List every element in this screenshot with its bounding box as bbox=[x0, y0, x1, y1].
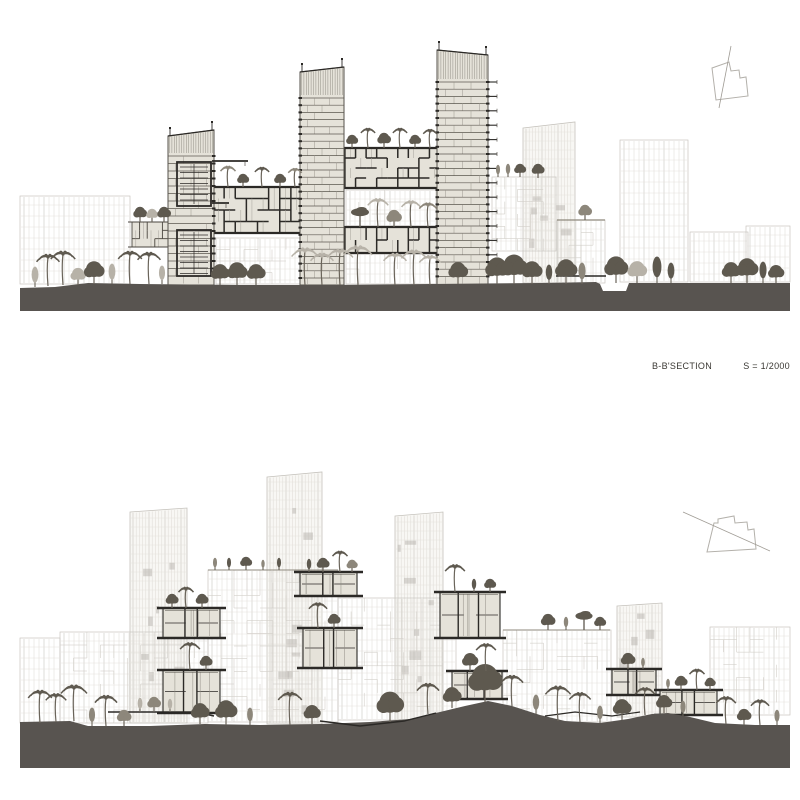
palm-tree bbox=[344, 246, 372, 285]
round-tree bbox=[594, 617, 606, 630]
palm-tree bbox=[393, 128, 407, 148]
slim-tree bbox=[227, 558, 231, 570]
palm-tree bbox=[37, 255, 60, 286]
palm-tree bbox=[423, 129, 436, 148]
keyplan-icon bbox=[712, 46, 748, 108]
palm-tree bbox=[419, 203, 436, 227]
slim-tree bbox=[533, 695, 539, 714]
round-tree bbox=[386, 210, 401, 227]
upper-section-drawing bbox=[20, 41, 790, 311]
maze-shape bbox=[209, 187, 306, 233]
palm-tree bbox=[333, 551, 348, 572]
scale-label: S = 1/2000 bbox=[743, 361, 790, 371]
box-shape bbox=[297, 628, 363, 668]
drawing-annotation: B-B'SECTION S = 1/2000 bbox=[652, 361, 790, 371]
palm-tree bbox=[361, 128, 375, 148]
round-tree bbox=[240, 557, 252, 570]
round-tree bbox=[578, 205, 592, 220]
round-tree bbox=[347, 560, 358, 572]
palm-tree bbox=[221, 166, 236, 187]
keyplan-icon bbox=[683, 512, 770, 552]
round-tree bbox=[377, 133, 391, 148]
slim-tree bbox=[668, 263, 675, 283]
slim-tree bbox=[261, 560, 264, 570]
palm-tree bbox=[402, 201, 421, 227]
box-shape bbox=[157, 608, 226, 638]
round-tree bbox=[200, 656, 213, 670]
round-tree bbox=[675, 676, 688, 690]
slim-tree bbox=[578, 263, 585, 284]
round-tree bbox=[604, 256, 628, 283]
round-tree bbox=[70, 268, 85, 285]
section-label: B-B'SECTION bbox=[652, 361, 712, 371]
box-shape bbox=[294, 572, 363, 596]
round-tree bbox=[237, 174, 249, 187]
slim-tree bbox=[759, 262, 766, 283]
slim-tree bbox=[666, 679, 670, 690]
palm-tree bbox=[569, 693, 590, 722]
round-tree bbox=[768, 265, 784, 283]
keyplan-shape bbox=[683, 512, 770, 552]
palm-tree bbox=[690, 669, 705, 690]
faint-shape bbox=[20, 638, 60, 723]
round-tree bbox=[274, 174, 286, 187]
maze-shape bbox=[341, 148, 444, 188]
round-tree bbox=[484, 579, 496, 592]
round-tree bbox=[84, 261, 105, 284]
palm-tree bbox=[138, 253, 161, 284]
faint-shape bbox=[710, 627, 790, 715]
round-tree bbox=[247, 264, 266, 285]
slim-tree bbox=[247, 708, 253, 725]
ground-shape bbox=[20, 282, 790, 311]
pine-tree bbox=[351, 207, 369, 227]
round-tree bbox=[146, 209, 158, 222]
palm-tree bbox=[51, 251, 75, 285]
lower-section-drawing bbox=[20, 472, 790, 768]
keyplan-shape bbox=[712, 46, 748, 108]
slim-tree bbox=[506, 164, 510, 177]
slim-tree bbox=[213, 558, 217, 570]
palm-tree bbox=[255, 167, 269, 187]
ctower-shape bbox=[436, 41, 498, 285]
round-tree bbox=[541, 614, 556, 630]
drawing-sheet: B-B'SECTION S = 1/2000 bbox=[0, 0, 800, 800]
slim-tree bbox=[159, 266, 165, 284]
box-shape bbox=[434, 592, 506, 638]
palm-tree bbox=[751, 700, 769, 725]
pine-tree bbox=[575, 611, 592, 630]
palm-tree bbox=[28, 690, 52, 723]
slim-tree bbox=[564, 617, 568, 630]
slim-tree bbox=[774, 710, 779, 725]
section-drawings bbox=[0, 0, 800, 800]
maze-shape bbox=[128, 222, 174, 247]
box-shape bbox=[606, 669, 662, 695]
slim-tree bbox=[472, 579, 476, 592]
ftower-shape bbox=[267, 472, 322, 724]
round-tree bbox=[196, 594, 209, 608]
palm-tree bbox=[445, 565, 465, 592]
slim-tree bbox=[496, 165, 500, 177]
round-tree bbox=[346, 135, 358, 148]
box-shape bbox=[157, 670, 226, 713]
round-tree bbox=[409, 135, 421, 148]
ctower-shape bbox=[168, 121, 216, 285]
canopy-shape bbox=[212, 161, 248, 166]
slim-tree bbox=[109, 264, 116, 284]
round-tree bbox=[133, 207, 147, 222]
round-tree bbox=[328, 614, 341, 628]
